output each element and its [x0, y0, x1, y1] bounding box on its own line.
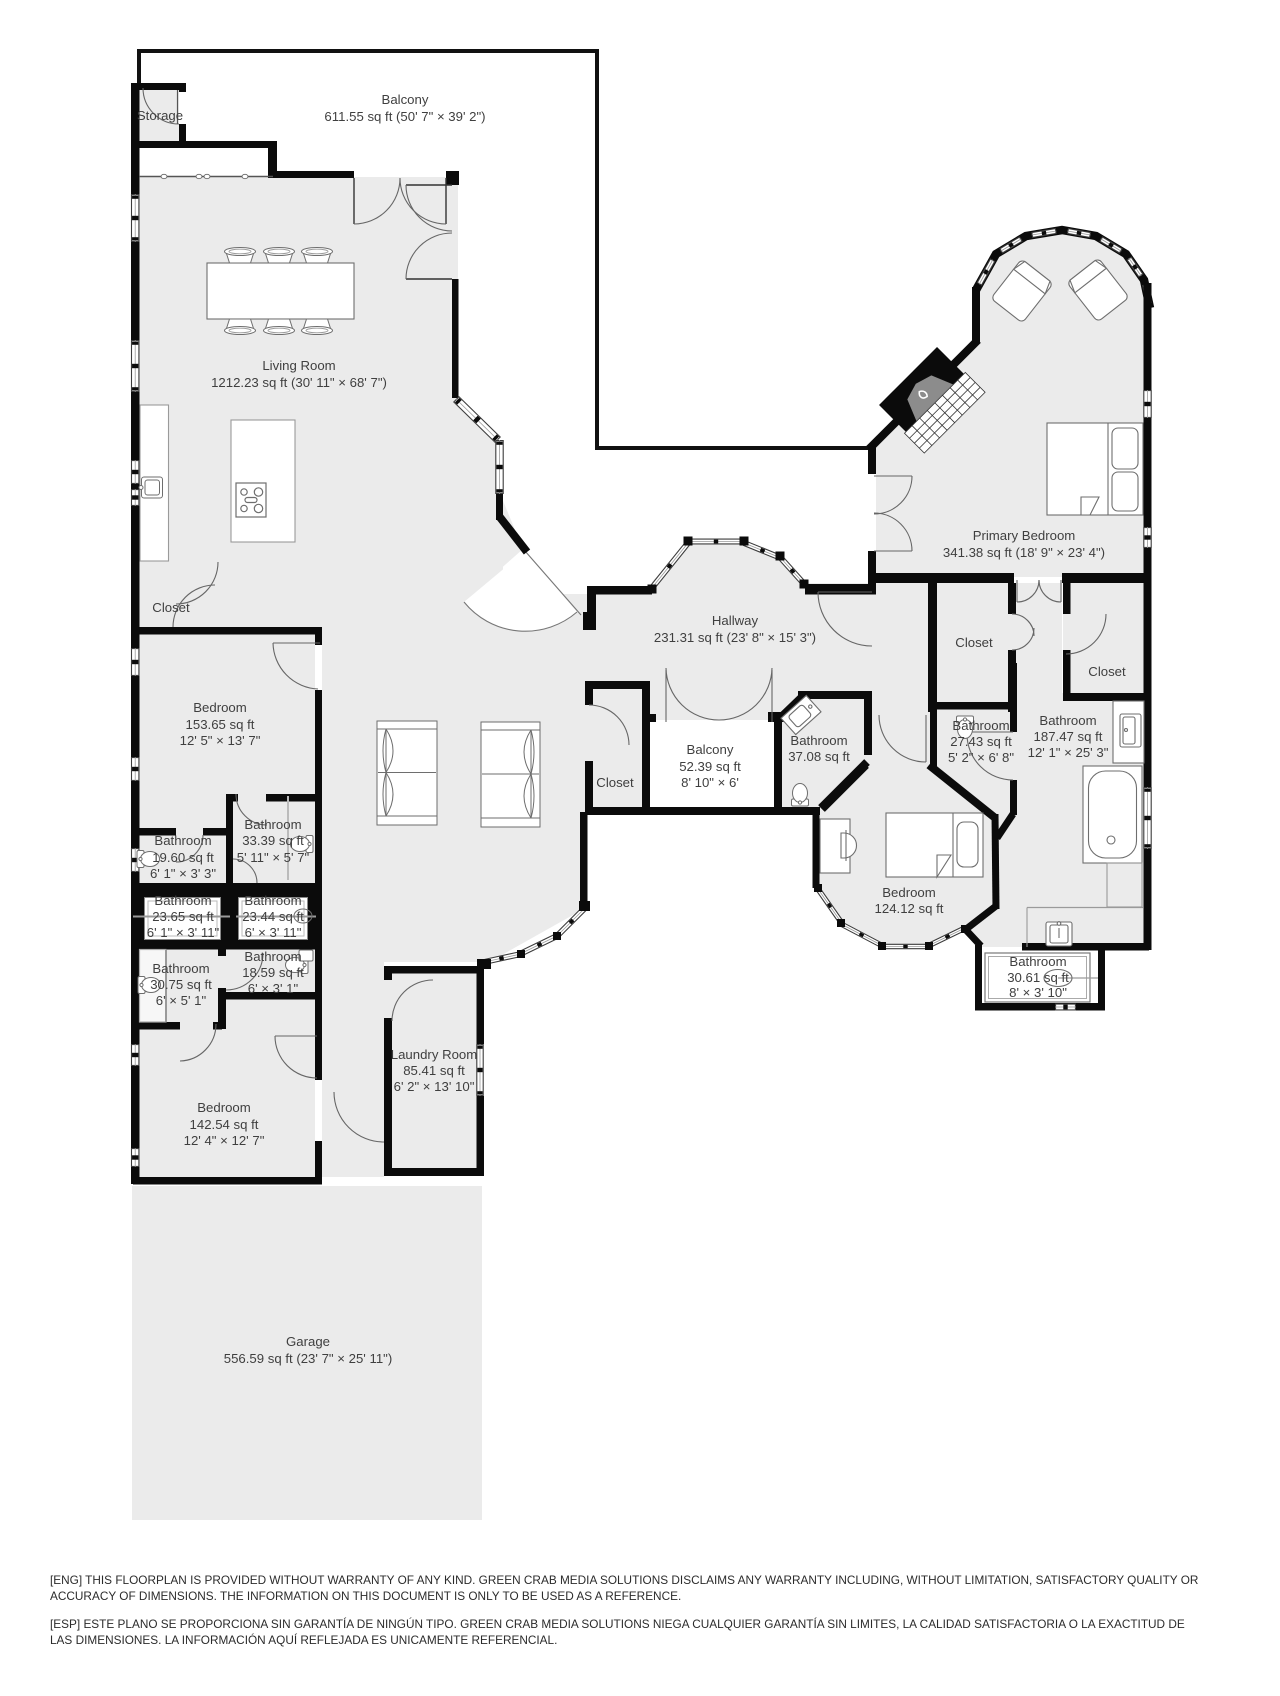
svg-text:Bathroom: Bathroom: [1009, 954, 1066, 969]
svg-text:Bathroom: Bathroom: [244, 949, 301, 964]
svg-text:6' × 5' 1": 6' × 5' 1": [156, 993, 207, 1008]
svg-text:1212.23 sq ft (30' 11" × 68' 7: 1212.23 sq ft (30' 11" × 68' 7"): [211, 375, 387, 390]
svg-text:Bathroom: Bathroom: [952, 718, 1009, 733]
svg-text:12' 1" × 25' 3": 12' 1" × 25' 3": [1028, 745, 1109, 760]
svg-text:85.41 sq ft: 85.41 sq ft: [403, 1063, 465, 1078]
svg-text:Balcony: Balcony: [382, 92, 429, 107]
svg-text:30.61 sq ft: 30.61 sq ft: [1007, 970, 1069, 985]
svg-text:Bedroom: Bedroom: [197, 1100, 251, 1115]
svg-text:Bathroom: Bathroom: [790, 733, 847, 748]
svg-text:6' 1" × 3' 11": 6' 1" × 3' 11": [147, 925, 220, 940]
svg-text:23.44 sq ft: 23.44 sq ft: [242, 909, 304, 924]
svg-text:Bedroom: Bedroom: [882, 885, 936, 900]
svg-text:153.65 sq ft: 153.65 sq ft: [186, 717, 255, 732]
svg-text:556.59 sq ft (23' 7" × 25' 11": 556.59 sq ft (23' 7" × 25' 11"): [224, 1351, 392, 1366]
svg-text:8' 10" × 6': 8' 10" × 6': [681, 775, 739, 790]
svg-text:6' 1" × 3' 3": 6' 1" × 3' 3": [150, 866, 216, 881]
svg-text:6' 2" × 13' 10": 6' 2" × 13' 10": [394, 1079, 475, 1094]
svg-text:23.65 sq ft: 23.65 sq ft: [152, 909, 214, 924]
svg-text:5' 2" × 6' 8": 5' 2" × 6' 8": [948, 750, 1014, 765]
svg-text:142.54 sq ft: 142.54 sq ft: [190, 1117, 259, 1132]
svg-text:5' 11" × 5' 7": 5' 11" × 5' 7": [237, 850, 310, 865]
svg-text:341.38 sq ft (18' 9" × 23' 4"): 341.38 sq ft (18' 9" × 23' 4"): [943, 545, 1105, 560]
svg-text:Living Room: Living Room: [262, 358, 335, 373]
svg-text:27.43 sq ft: 27.43 sq ft: [950, 734, 1012, 749]
svg-text:18.59 sq ft: 18.59 sq ft: [242, 965, 304, 980]
svg-text:LAS DIMENSIONES. LA INFORMACIÓ: LAS DIMENSIONES. LA INFORMACIÓN AQUÍ REF…: [50, 1633, 557, 1647]
svg-text:52.39 sq ft: 52.39 sq ft: [679, 759, 741, 774]
svg-text:Laundry Room: Laundry Room: [391, 1047, 478, 1062]
svg-text:Balcony: Balcony: [687, 742, 734, 757]
svg-text:Bedroom: Bedroom: [193, 700, 247, 715]
svg-text:6' × 3' 1": 6' × 3' 1": [248, 981, 299, 996]
svg-text:12' 4" × 12' 7": 12' 4" × 12' 7": [184, 1133, 265, 1148]
svg-text:Storage: Storage: [137, 108, 183, 123]
svg-text:8' × 3' 10": 8' × 3' 10": [1009, 985, 1067, 1000]
svg-text:Closet: Closet: [596, 775, 634, 790]
svg-text:Garage: Garage: [286, 1334, 330, 1349]
svg-text:6' × 3' 11": 6' × 3' 11": [245, 925, 302, 940]
svg-text:Closet: Closet: [955, 635, 993, 650]
svg-text:[ESP] ESTE PLANO SE PROPORCION: [ESP] ESTE PLANO SE PROPORCIONA SIN GARA…: [50, 1617, 1185, 1631]
svg-text:611.55 sq ft (50' 7" × 39' 2"): 611.55 sq ft (50' 7" × 39' 2"): [324, 109, 485, 124]
svg-text:30.75 sq ft: 30.75 sq ft: [150, 977, 212, 992]
svg-text:[ENG] THIS FLOORPLAN IS PROVID: [ENG] THIS FLOORPLAN IS PROVIDED WITHOUT…: [50, 1573, 1198, 1587]
svg-text:19.60 sq ft: 19.60 sq ft: [152, 850, 214, 865]
svg-text:37.08 sq ft: 37.08 sq ft: [788, 749, 850, 764]
svg-text:ACCURACY OF DIMENSIONS. THE IN: ACCURACY OF DIMENSIONS. THE INFORMATION …: [50, 1589, 681, 1603]
svg-text:Bathroom: Bathroom: [154, 893, 211, 908]
svg-text:Primary Bedroom: Primary Bedroom: [973, 528, 1076, 543]
svg-text:187.47 sq ft: 187.47 sq ft: [1034, 729, 1103, 744]
svg-text:Bathroom: Bathroom: [1039, 713, 1096, 728]
svg-text:Bathroom: Bathroom: [244, 817, 301, 832]
svg-text:Bathroom: Bathroom: [152, 961, 209, 976]
svg-text:Closet: Closet: [152, 600, 190, 615]
svg-text:Hallway: Hallway: [712, 613, 759, 628]
svg-text:231.31 sq ft (23' 8" × 15' 3"): 231.31 sq ft (23' 8" × 15' 3"): [654, 630, 816, 645]
svg-text:Bathroom: Bathroom: [154, 833, 211, 848]
svg-text:Closet: Closet: [1088, 664, 1126, 679]
svg-text:Bathroom: Bathroom: [244, 893, 301, 908]
svg-text:124.12 sq ft: 124.12 sq ft: [875, 901, 944, 916]
svg-text:33.39 sq ft: 33.39 sq ft: [242, 833, 304, 848]
svg-text:12' 5" × 13' 7": 12' 5" × 13' 7": [180, 733, 261, 748]
